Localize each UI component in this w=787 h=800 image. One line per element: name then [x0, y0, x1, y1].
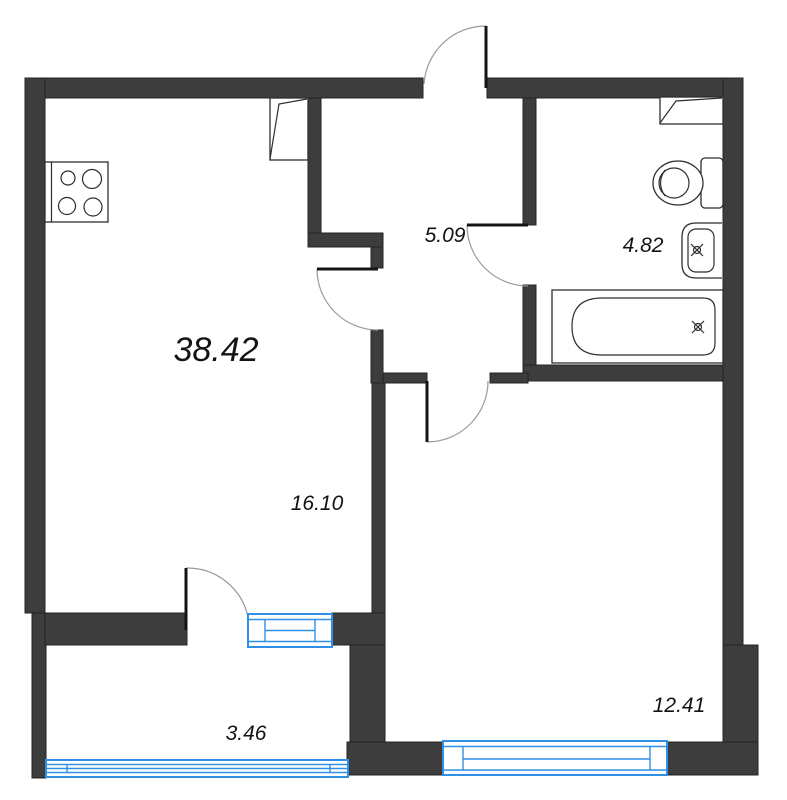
- bathtub-icon: [552, 290, 723, 363]
- wall-central: [372, 383, 385, 613]
- fixtures: [45, 97, 723, 363]
- wall-left: [25, 78, 45, 613]
- vent-shaft-icon-bathroom: [660, 97, 723, 124]
- vent-shaft-icon-living: [270, 98, 308, 160]
- wall-bath-bottom: [523, 365, 723, 381]
- balcony-glazing-icon: [46, 760, 348, 777]
- living-balcony-window-icon: [248, 614, 332, 647]
- wall-bedroom-bottom-right: [667, 742, 758, 775]
- walls: [25, 78, 758, 778]
- wall-bath-lower: [523, 285, 536, 373]
- wall-bath-upper: [523, 98, 536, 225]
- wall-hall-bedroom-right: [490, 373, 528, 383]
- wall-livingdoor-stub-upper: [371, 247, 383, 268]
- entrance-door-icon: [424, 26, 486, 88]
- wall-balcony-right: [350, 645, 385, 742]
- wall-hall-left: [308, 98, 321, 233]
- wall-living-bottom: [45, 613, 187, 645]
- wall-balcony-left: [32, 613, 46, 778]
- wall-bottom-block-left: [347, 742, 447, 775]
- hallway-area-label: 5.09: [425, 224, 466, 247]
- living-room-door-icon: [317, 269, 378, 330]
- doors: [186, 26, 528, 630]
- wall-corner-block: [332, 613, 385, 645]
- balcony-door-icon: [186, 568, 248, 630]
- sink-icon: [682, 223, 722, 278]
- balcony-area-label: 3.46: [226, 722, 267, 745]
- toilet-icon: [653, 158, 723, 208]
- wall-top-left: [25, 78, 423, 98]
- stove-icon: [45, 162, 108, 222]
- wall-hall-bedroom-left: [383, 373, 427, 383]
- wall-hall-jog: [308, 233, 383, 247]
- wall-livingdoor-stub-lower: [371, 330, 383, 383]
- wall-top-right: [487, 78, 743, 98]
- bedroom-door-icon: [427, 381, 488, 442]
- bathroom-door-icon: [467, 225, 528, 286]
- bedroom-window-icon: [443, 741, 667, 775]
- bathroom-area-label: 4.82: [623, 234, 664, 257]
- floor-plan: 38.42 16.10 5.09 4.82 12.41 3.46: [0, 0, 787, 800]
- total-area-label: 38.42: [173, 331, 258, 369]
- wall-right-upper: [723, 78, 743, 645]
- living-area-label: 16.10: [291, 492, 344, 515]
- bedroom-area-label: 12.41: [653, 694, 706, 717]
- floor-plan-canvas: 38.42 16.10 5.09 4.82 12.41 3.46: [0, 0, 787, 800]
